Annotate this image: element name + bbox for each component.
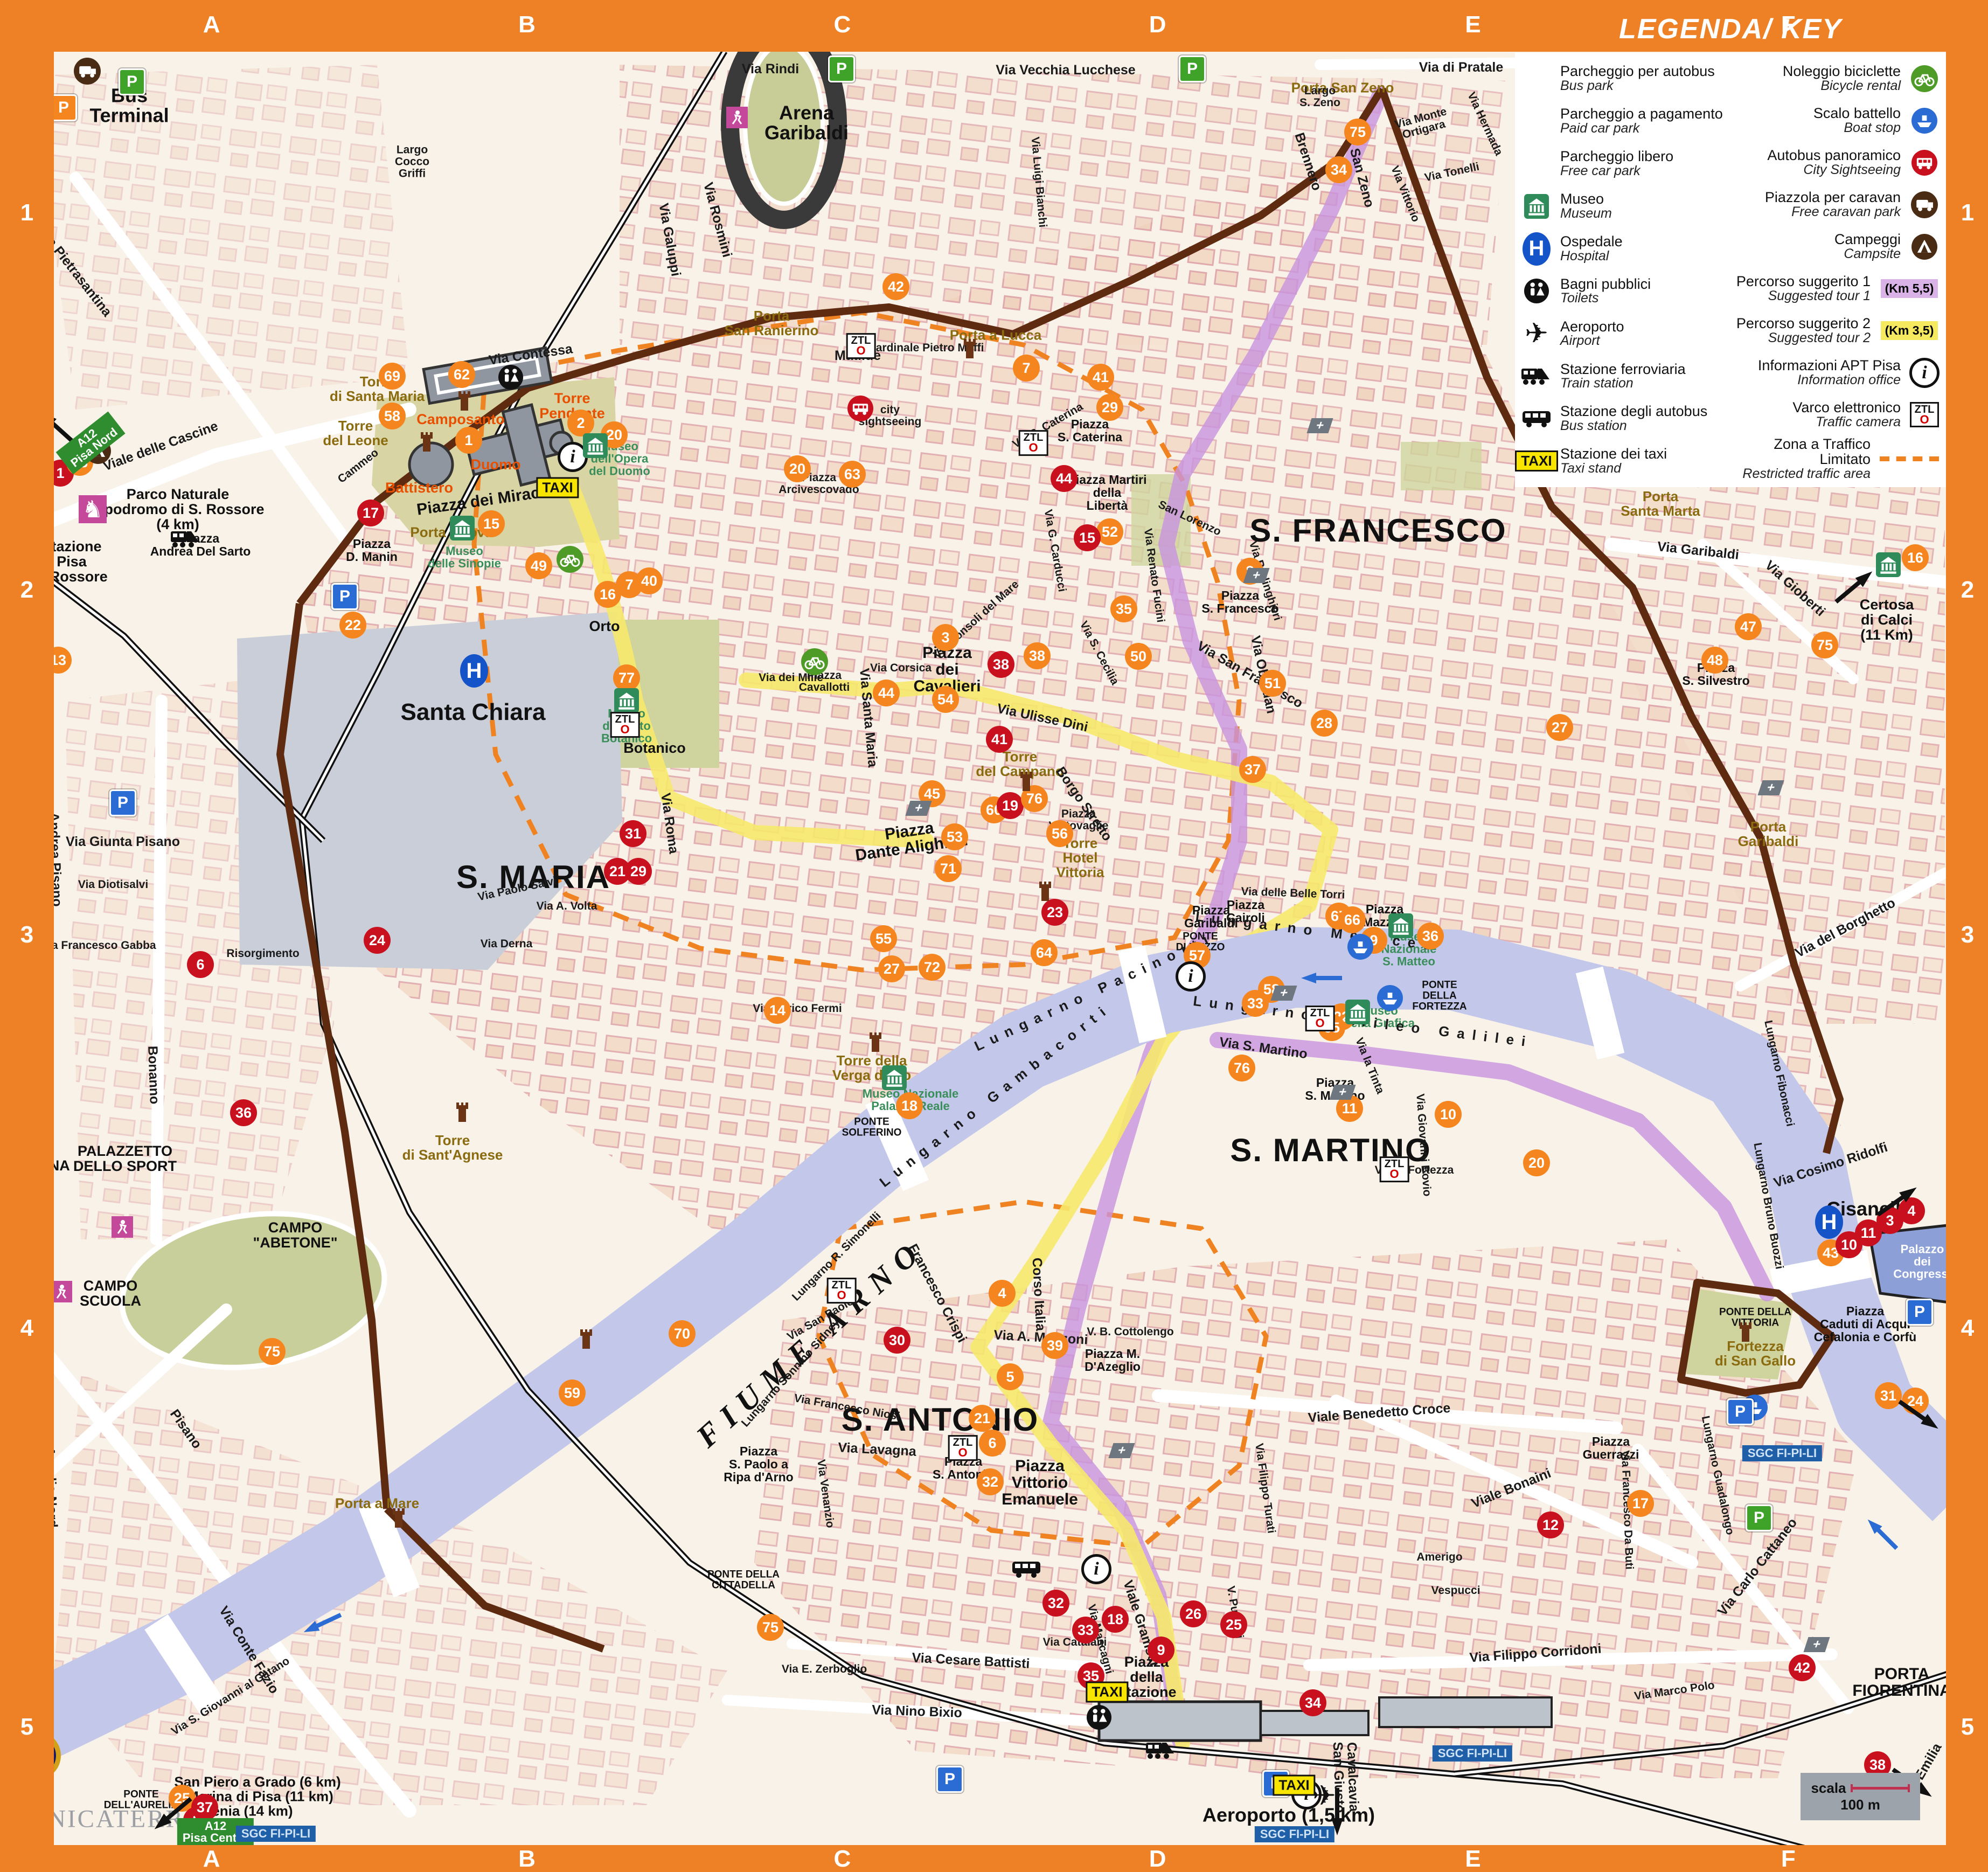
grid-number-1-right: 1 [1961, 199, 1974, 226]
legend-icon-sight [1907, 150, 1942, 176]
traffic-camera-icon: ZTLO [827, 1278, 857, 1304]
map-label-piazza-d-manin: Piazza D. Manin [346, 538, 398, 564]
poi-marker-2: 2 [567, 410, 594, 436]
museum-icon [1345, 1000, 1370, 1024]
map-label-piazza-s-caterina: Piazza S. Caterina [1058, 418, 1122, 444]
poi-marker-19: 19 [997, 792, 1024, 819]
map-label-parco-naturale-ippodromo-di-s-rossore-4-: Parco Naturale Ippodromo di S. Rossore (… [91, 487, 264, 532]
poi-marker-29: 29 [625, 858, 652, 885]
grid-letter-D-bottom: D [1149, 1846, 1166, 1872]
legend-text-boat-stop: Scalo battelloBoat stop [1813, 106, 1901, 135]
poi-marker-14: 14 [764, 997, 791, 1024]
map-label-via-e-zerboglio: Via E. Zerboglio [782, 1663, 867, 1675]
map-label-corso-italia: Corso Italia [1030, 1257, 1047, 1331]
poi-marker-33: 33 [1242, 990, 1269, 1017]
grid-letter-C-top: C [833, 11, 851, 38]
map-label-porta-fiorentina: PORTA FIORENTINA [1852, 1666, 1951, 1699]
museum-icon [1388, 913, 1413, 938]
grid-letter-C-bottom: C [833, 1846, 851, 1872]
legend-icon-ztl: ZTLO [1907, 402, 1942, 428]
poi-marker-16: 16 [1902, 544, 1929, 571]
map-label-via-nino-bixio: Via Nino Bixio [872, 1703, 962, 1720]
legend-text-free-caravan-park: Piazzola per caravanFree caravan park [1765, 190, 1901, 219]
map-label-fortezza-di-san-gallo: Fortezza di San Gallo [1715, 1339, 1796, 1368]
poi-marker-23: 23 [1041, 899, 1068, 926]
map-label-francesco-crispi: Francesco Crispi [906, 1242, 969, 1344]
poi-marker-75: 75 [1811, 632, 1838, 658]
legend-item-restricted-traffic-area: Zona a Traffico LimitatoRestricted traff… [1730, 437, 1942, 481]
sports-icon [51, 1281, 72, 1302]
map-label-risorgimento: Risorgimento [226, 948, 299, 960]
poi-marker-4: 4 [989, 1280, 1016, 1307]
legend-icon-bus [1519, 408, 1554, 429]
free-parking-icon: P [119, 68, 145, 95]
poi-marker-55: 55 [870, 925, 897, 952]
legend-item-free-caravan-park: Piazzola per caravanFree caravan park [1730, 185, 1942, 224]
map-label-via-luigi-bianchi: Via Luigi Bianchi [1029, 136, 1048, 228]
grid-letter-B-top: B [518, 11, 536, 38]
map-label-piazza-martiri-della-libert: Piazza Martiri della Libertà [1068, 474, 1147, 512]
poi-marker-7: 7 [1013, 355, 1040, 382]
museum-icon [614, 688, 639, 713]
sports-icon [112, 1216, 133, 1238]
taxi-stand-icon: TAXI [1273, 1775, 1315, 1796]
toilets-icon [498, 365, 523, 390]
poi-marker-29: 29 [1096, 394, 1123, 421]
church-icon: + [1806, 1637, 1827, 1652]
legend-text-bus-station: Stazione degli autobusBus station [1560, 404, 1707, 433]
map-label-via-ulisse-dini: Via Ulisse Dini [996, 701, 1089, 734]
poi-marker-58: 58 [379, 403, 406, 429]
legend-title: LEGENDA/ KEY [1515, 5, 1946, 53]
map-label-lungarno-pacinotti: Lungarno Pacinotti [972, 929, 1218, 1053]
church-icon: + [1760, 780, 1782, 795]
poi-marker-38: 38 [988, 651, 1014, 678]
legend-item-free-car-park: Parcheggio liberoFree car park [1519, 144, 1730, 183]
museum-icon [1876, 552, 1901, 577]
map-label-san-piero-a-grado-6-km: San Piero a Grado (6 km) [174, 1774, 340, 1789]
map-label-viale-benedetto-croce: Viale Benedetto Croce [1308, 1401, 1451, 1425]
poi-marker-26: 26 [1180, 1600, 1207, 1627]
poi-marker-12: 12 [1537, 1512, 1564, 1538]
information-icon: i [1081, 1554, 1111, 1584]
legend-right-column: Noleggio bicicletteBicycle rentalScalo b… [1730, 59, 1942, 481]
tower-icon [391, 1505, 407, 1529]
poi-marker-32: 32 [977, 1468, 1004, 1495]
paid-parking-icon: P [109, 789, 136, 816]
poi-marker-36: 36 [230, 1099, 257, 1126]
paid-parking-icon: P [1906, 1299, 1933, 1326]
road-sign-sgc-fi-pi-li: SGC FI-PI-LI [1742, 1445, 1822, 1461]
legend-icon-h: H [1519, 232, 1554, 266]
map-label-amerigo: Amerigo [1416, 1551, 1462, 1563]
grid-number-4-right: 4 [1961, 1315, 1974, 1342]
poi-marker-63: 63 [839, 461, 866, 488]
map-label-via-vittorio: Via Vittorio [1388, 164, 1421, 224]
poi-marker-40: 40 [636, 567, 663, 594]
map-label-via-tonelli: Via Tonelli [1423, 161, 1480, 184]
legend-text-toilets: Bagni pubbliciToilets [1560, 277, 1651, 306]
poi-marker-30: 30 [884, 1327, 910, 1354]
church-icon: + [1309, 418, 1331, 433]
legend-item-suggested-tour-2: Percorso suggerito 2Suggested tour 2(Km … [1730, 311, 1942, 350]
poi-marker-44: 44 [873, 680, 900, 706]
poi-marker-53: 53 [941, 823, 968, 850]
tower-icon [419, 429, 435, 453]
poi-marker-15: 15 [478, 510, 505, 537]
legend-item-bus-station: Stazione degli autobusBus station [1519, 399, 1730, 438]
legend-icon-info: i [1907, 358, 1942, 388]
bicycle-rental-icon [557, 546, 583, 573]
map-label-san-zeno: San Zeno [1347, 147, 1377, 209]
grid-letter-E-bottom: E [1465, 1846, 1480, 1872]
map-label-via-giunta-pisano: Via Giunta Pisano [66, 835, 180, 849]
poi-marker-41: 41 [1087, 364, 1114, 391]
map-label-via-filippo-corridoni: Via Filippo Corridoni [1469, 1641, 1602, 1665]
boat-stop-icon [1377, 985, 1403, 1011]
map-label-pisano: Pisano [168, 1407, 204, 1451]
legend-text-bicycle-rental: Noleggio bicicletteBicycle rental [1783, 64, 1901, 93]
scale-line [1851, 1787, 1910, 1790]
tower-icon [454, 1099, 470, 1123]
legend-item-paid-car-park: Parcheggio a pagamentoPaid car park [1519, 102, 1730, 141]
poi-marker-42: 42 [1789, 1654, 1816, 1681]
poi-marker-42: 42 [882, 273, 909, 300]
boat-stop-icon [1347, 934, 1373, 960]
map-label-via-contessa: Via Contessa [488, 342, 574, 368]
road-sign-sgc-fi-pi-li: SGC FI-PI-LI [1255, 1826, 1334, 1842]
tower-icon [578, 1326, 594, 1350]
poi-marker-64: 64 [1031, 939, 1058, 966]
map-label-duomo: Duomo [471, 457, 521, 472]
map-label-via-roma: Via Roma [658, 792, 681, 855]
traffic-camera-icon: ZTLO [1305, 1006, 1335, 1031]
map-label-via-di-pratale: Via di Pratale [1419, 60, 1504, 74]
poi-marker-69: 69 [379, 363, 406, 390]
map-label-campo-scuola: CAMPO SCUOLA [80, 1278, 141, 1308]
grid-number-4-left: 4 [20, 1315, 33, 1342]
tower-icon [1737, 1319, 1754, 1343]
poi-marker-38: 38 [1024, 642, 1051, 669]
taxi-stand-icon: TAXI [1086, 1682, 1128, 1703]
map-label-via-cosimo-ridolfi: Via Cosimo Ridolfi [1772, 1140, 1889, 1190]
legend-item-bus-park: Parcheggio per autobusBus park [1519, 59, 1730, 98]
river-flow-arrow-icon [301, 1608, 346, 1638]
legend-ztl-dash-sample [1877, 456, 1942, 461]
poi-marker-39: 39 [1041, 1332, 1068, 1359]
legend-text-airport: AeroportoAirport [1560, 320, 1624, 348]
map-label-torre-di-santa-maria: Torre di Santa Maria [330, 375, 425, 404]
map-label-arena-garibaldi: Arena Garibaldi [764, 103, 849, 143]
legend-icon-boat [1907, 108, 1942, 134]
poi-marker-66: 66 [1339, 906, 1366, 933]
poi-marker-54: 54 [932, 686, 959, 713]
poi-marker-6: 6 [979, 1430, 1006, 1457]
paid-parking-icon: P [1727, 1398, 1754, 1425]
grid-letter-D-top: D [1149, 11, 1166, 38]
grid-letter-F-bottom: F [1781, 1846, 1796, 1872]
bicycle-rental-icon [801, 648, 828, 675]
legend-item-campsite: CampeggiCampsite [1730, 227, 1942, 266]
museum-icon [583, 433, 608, 458]
map-label-via-venanzio: Via Venanzio [815, 1459, 836, 1529]
map-label-via-lavagna: Via Lavagna [838, 1440, 917, 1459]
legend-icon-museum [1519, 194, 1554, 219]
map-label-via-s-cecilia: Via S. Cecilia [1078, 619, 1121, 687]
poi-marker-5: 5 [997, 1363, 1024, 1390]
poi-marker-25: 25 [1220, 1611, 1247, 1638]
map-label-lungarno-fibonacci: Lungarno Fibonacci [1762, 1020, 1796, 1128]
map-label-via-filippo-turati: Via Filippo Turati [1253, 1443, 1277, 1534]
free-parking-icon: P [1179, 56, 1206, 82]
legend-icon-bike [1907, 65, 1942, 92]
legend-text-information-office: Informazioni APT PisaInformation office [1758, 358, 1901, 387]
grid-number-2-right: 2 [1961, 577, 1974, 604]
traffic-camera-icon: ZTLO [610, 712, 640, 738]
map-label-via-corsica: Via Corsica [870, 662, 932, 674]
poi-marker-9: 9 [1148, 1637, 1174, 1663]
map-label-lungarno-guadalongo: Lungarno Guadalongo [1699, 1415, 1736, 1536]
poi-marker-75: 75 [1344, 119, 1371, 145]
map-label-ponte-solferino: PONTE SOLFERINO [842, 1117, 902, 1138]
map-label-museo-delle-sinopie: Museo delle Sinopie [428, 545, 501, 570]
map-label-viale-bonaini: Viale Bonaini [1470, 1466, 1553, 1511]
legend-text-restricted-traffic-area: Zona a Traffico LimitatoRestricted traff… [1730, 437, 1871, 481]
scale-bar: scala 100 m [1801, 1773, 1920, 1820]
map-label-via-del-borghetto: Via del Borghetto [1793, 896, 1898, 960]
map-label-palazzetto-dello-sport: PALAZZETTO DELLO SPORT [73, 1143, 177, 1174]
legend-item-bicycle-rental: Noleggio bicicletteBicycle rental [1730, 59, 1942, 98]
frame-bottom [0, 1845, 1988, 1872]
map-label-porta-garibaldi: Porta Garibaldi [1738, 820, 1799, 849]
map-label-bonanno: Bonanno [145, 1045, 162, 1104]
legend-item-traffic-camera: Varco elettronicoTraffic cameraZTLO [1730, 396, 1942, 434]
tower-icon [962, 336, 978, 359]
poi-marker-20: 20 [784, 455, 811, 482]
map-label-torre-del-leone: Torre del Leone [323, 419, 388, 448]
map-label-orto: Orto [589, 619, 620, 634]
map-label-santa-chiara: Santa Chiara [401, 700, 546, 725]
legend-text-traffic-camera: Varco elettronicoTraffic camera [1792, 400, 1901, 429]
legend-text-train-station: Stazione ferroviariaTrain station [1560, 362, 1686, 391]
legend-item-city-sightseeing: Autobus panoramicoCity Sightseeing [1730, 143, 1942, 182]
poi-marker-77: 77 [613, 664, 640, 691]
map-label-via-rosmini: Via Rosmini [701, 181, 734, 259]
legend-icon-wc [1519, 279, 1554, 303]
grid-number-1-left: 1 [20, 199, 33, 226]
poi-marker-32: 32 [1042, 1590, 1069, 1617]
train-station-icon [169, 527, 203, 551]
poi-marker-21: 21 [969, 1405, 996, 1432]
hospital-icon: H [460, 654, 488, 688]
legend-text-taxi-stand: Stazione dei taxiTaxi stand [1560, 447, 1667, 475]
legend-text-suggested-tour-1: Percorso suggerito 1Suggested tour 1 [1736, 274, 1871, 303]
poi-marker-48: 48 [1701, 647, 1728, 674]
paid-parking-icon: P [936, 1766, 963, 1793]
tower-icon [1037, 878, 1053, 902]
traffic-camera-icon: ZTLO [1380, 1156, 1409, 1182]
church-icon: + [1111, 1443, 1132, 1458]
map-label-porta-san-ranierino: Porta San Ranierino [725, 309, 819, 338]
map-label-via-derna: Via Derna [481, 938, 533, 950]
map-label-via-galuppi: Via Galuppi [656, 202, 683, 278]
poi-marker-36: 36 [1417, 923, 1444, 949]
map-label-via-gioberti: Via Gioberti [1762, 558, 1827, 619]
bus-station-icon [1011, 1558, 1041, 1580]
map-label-via-a-volta: Via A. Volta [537, 900, 597, 912]
traffic-camera-icon: ZTLO [846, 333, 876, 359]
legend-left-column: Parcheggio per autobusBus parkParcheggio… [1519, 59, 1730, 481]
map-label-porta-santa-marta: Porta Santa Marta [1621, 489, 1700, 518]
poi-marker-72: 72 [919, 954, 946, 981]
sports-icon [726, 107, 748, 128]
grid-number-3-right: 3 [1961, 921, 1974, 948]
poi-marker-62: 62 [448, 361, 475, 388]
poi-marker-75: 75 [757, 1614, 784, 1641]
map-label-s-francesco: S. FRANCESCO [1249, 514, 1506, 547]
legend-text-bus-park: Parcheggio per autobusBus park [1560, 64, 1715, 93]
legend-item-toilets: Bagni pubbliciToilets [1519, 272, 1730, 310]
grid-number-5-left: 5 [20, 1714, 33, 1741]
grid-letter-A-top: A [203, 11, 220, 38]
map-label-cammeo: Cammeo [336, 447, 380, 486]
map-label-largo-cocco-griffi: Largo Cocco Griffi [395, 144, 429, 179]
grid-number-2-left: 2 [20, 577, 33, 604]
poi-marker-75: 75 [259, 1338, 286, 1365]
city-sightseeing-icon [847, 396, 873, 421]
poi-marker-41: 41 [986, 726, 1013, 753]
grid-letter-B-bottom: B [518, 1846, 536, 1872]
map-label-via-francesco-gabba: Via Francesco Gabba [41, 940, 156, 952]
legend-item-airport: ✈AeroportoAirport [1519, 314, 1730, 353]
legend-item-information-office: Informazioni APT PisaInformation officei [1730, 353, 1942, 392]
map-label-via-cesare-battisti: Via Cesare Battisti [912, 1651, 1030, 1670]
legend-item-museum: MuseoMuseum [1519, 187, 1730, 226]
poi-marker-49: 49 [525, 552, 552, 579]
map-label-san-lorenzo: San Lorenzo [1156, 498, 1222, 538]
map-label-ponte-della-vittoria: PONTE DELLA VITTORIA [1719, 1307, 1791, 1328]
legend-item-taxi-stand: TAXIStazione dei taxiTaxi stand [1519, 442, 1730, 481]
poi-marker-3: 3 [932, 624, 959, 651]
poi-marker-33: 33 [1072, 1617, 1099, 1644]
map-label-piazza-vittorio-emanuele: Piazza Vittorio Emanuele [1002, 1458, 1078, 1508]
map-label-certosa-di-calci-11-km: Certosa di Calci (11 Km) [1860, 597, 1914, 642]
map-label-camposanto: Camposanto [416, 412, 505, 427]
bus-park-icon: P [50, 94, 77, 121]
grid-number-5-right: 5 [1961, 1714, 1974, 1741]
grid-letter-E-top: E [1465, 11, 1480, 38]
map-label-lungarno-bruno-buozzi: Lungarno Bruno Buozzi [1751, 1142, 1785, 1270]
church-icon: + [908, 801, 929, 816]
tower-icon [456, 388, 472, 412]
poi-marker-52: 52 [1096, 518, 1123, 545]
poi-marker-18: 18 [1102, 1606, 1129, 1633]
museum-icon [450, 516, 475, 540]
tower-icon [867, 1029, 884, 1053]
free-parking-icon: P [828, 56, 855, 82]
tower-icon [1018, 768, 1034, 792]
legend-tour2-badge: (Km 3,5) [1877, 321, 1942, 340]
poi-marker-27: 27 [878, 955, 905, 982]
poi-marker-76: 76 [1228, 1055, 1255, 1081]
poi-marker-15: 15 [1074, 524, 1101, 551]
map-label-torre-di-sant-agnese: Torre di Sant'Agnese [402, 1133, 503, 1162]
map-label-via-s-martino: Via S. Martino [1219, 1035, 1309, 1062]
map-label-ponte-della-cittadella: PONTE DELLA CITTADELLA [707, 1569, 780, 1591]
scale-label: scala [1811, 1780, 1846, 1797]
poi-marker-50: 50 [1125, 643, 1152, 670]
poi-marker-28: 28 [1311, 710, 1338, 737]
legend-icon-caravan [1907, 191, 1942, 218]
legend-item-hospital: HOspedaleHospital [1519, 230, 1730, 268]
poi-marker-27: 27 [1546, 714, 1573, 741]
free-parking-icon: P [1746, 1504, 1772, 1531]
legend-icon-train [1519, 364, 1554, 388]
map-label-vespucci: Vespucci [1431, 1585, 1480, 1597]
map-label-via-rindi: Via Rindi [742, 62, 800, 76]
poi-marker-18: 18 [896, 1092, 923, 1119]
traffic-camera-icon: ZTLO [948, 1435, 978, 1461]
poi-marker-37: 37 [1239, 756, 1266, 783]
legend-icon-taxi: TAXI [1519, 450, 1554, 472]
map-label-via-marco-polo: Via Marco Polo [1634, 1680, 1715, 1703]
poi-marker-35: 35 [1110, 595, 1137, 622]
poi-marker-70: 70 [669, 1320, 696, 1347]
church-icon: + [1332, 1085, 1353, 1100]
river-flow-arrow-icon [1863, 1515, 1903, 1555]
map-label-brennero: Brennero [1292, 131, 1324, 192]
traffic-camera-icon: ZTLO [1019, 430, 1048, 456]
museum-icon [882, 1065, 907, 1090]
toilets-icon [1087, 1705, 1111, 1730]
river-flow-arrow-icon [1301, 972, 1344, 984]
map-label-ponte-della-fortezza: PONTE DELLA FORTEZZA [1412, 980, 1466, 1011]
paid-parking-icon: P [331, 583, 358, 610]
poi-marker-6: 6 [187, 951, 214, 978]
poi-marker-56: 56 [1046, 820, 1073, 847]
poi-marker-1: 1 [455, 427, 482, 454]
pisa-tourist-map: { "title": "Pisa city tourist map", "col… [0, 0, 1988, 1872]
map-label-via-santa-maria: Via Santa Maria [857, 668, 880, 768]
legend-text-city-sightseeing: Autobus panoramicoCity Sightseeing [1767, 148, 1901, 177]
poi-marker-17: 17 [357, 500, 384, 526]
legend-item-suggested-tour-1: Percorso suggerito 1Suggested tour 1(Km … [1730, 269, 1942, 308]
poi-marker-17: 17 [1627, 1490, 1654, 1517]
taxi-stand-icon: TAXI [536, 477, 579, 498]
map-label-battistero: Battistero [385, 480, 453, 495]
poi-marker-22: 22 [339, 612, 366, 639]
train-station-icon [1144, 1738, 1178, 1762]
legend: LEGENDA/ KEY Parcheggio per autobusBus p… [1515, 5, 1946, 489]
poi-marker-10: 10 [1435, 1101, 1462, 1128]
map-label-via-s-giovanni-al-gatano: Via S. Giovanni al Gatano [170, 1655, 292, 1737]
map-label-v-b-cottolengo: V. B. Cottolengo [1087, 1326, 1173, 1338]
legend-item-boat-stop: Scalo battelloBoat stop [1730, 101, 1942, 140]
grid-number-3-left: 3 [20, 921, 33, 948]
poi-marker-47: 47 [1735, 613, 1762, 640]
poi-marker-31: 31 [620, 820, 647, 847]
church-icon: + [1273, 986, 1295, 1001]
poi-marker-71: 71 [935, 855, 962, 882]
poi-marker-44: 44 [1051, 465, 1078, 492]
map-label-campo-abetone: CAMPO "ABETONE" [253, 1220, 337, 1250]
poi-marker-34: 34 [1325, 156, 1352, 183]
legend-text-campsite: CampeggiCampsite [1834, 232, 1901, 261]
caravan-park-icon [74, 58, 101, 85]
legend-text-suggested-tour-2: Percorso suggerito 2Suggested tour 2 [1736, 316, 1871, 345]
hippodrome-icon: ♞ [79, 495, 107, 523]
poi-marker-20: 20 [1523, 1149, 1550, 1176]
